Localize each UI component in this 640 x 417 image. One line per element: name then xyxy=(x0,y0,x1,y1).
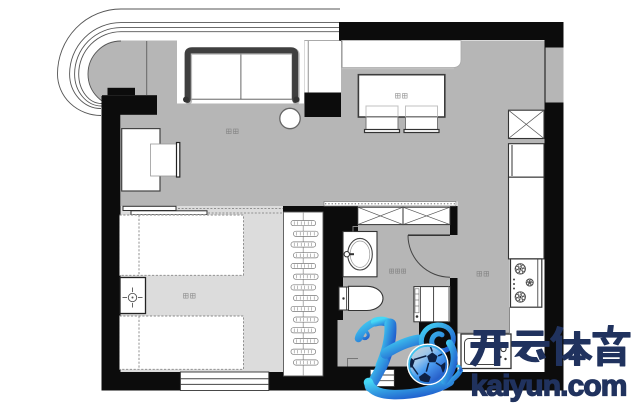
svg-text:kaiyun.com: kaiyun.com xyxy=(471,370,627,403)
